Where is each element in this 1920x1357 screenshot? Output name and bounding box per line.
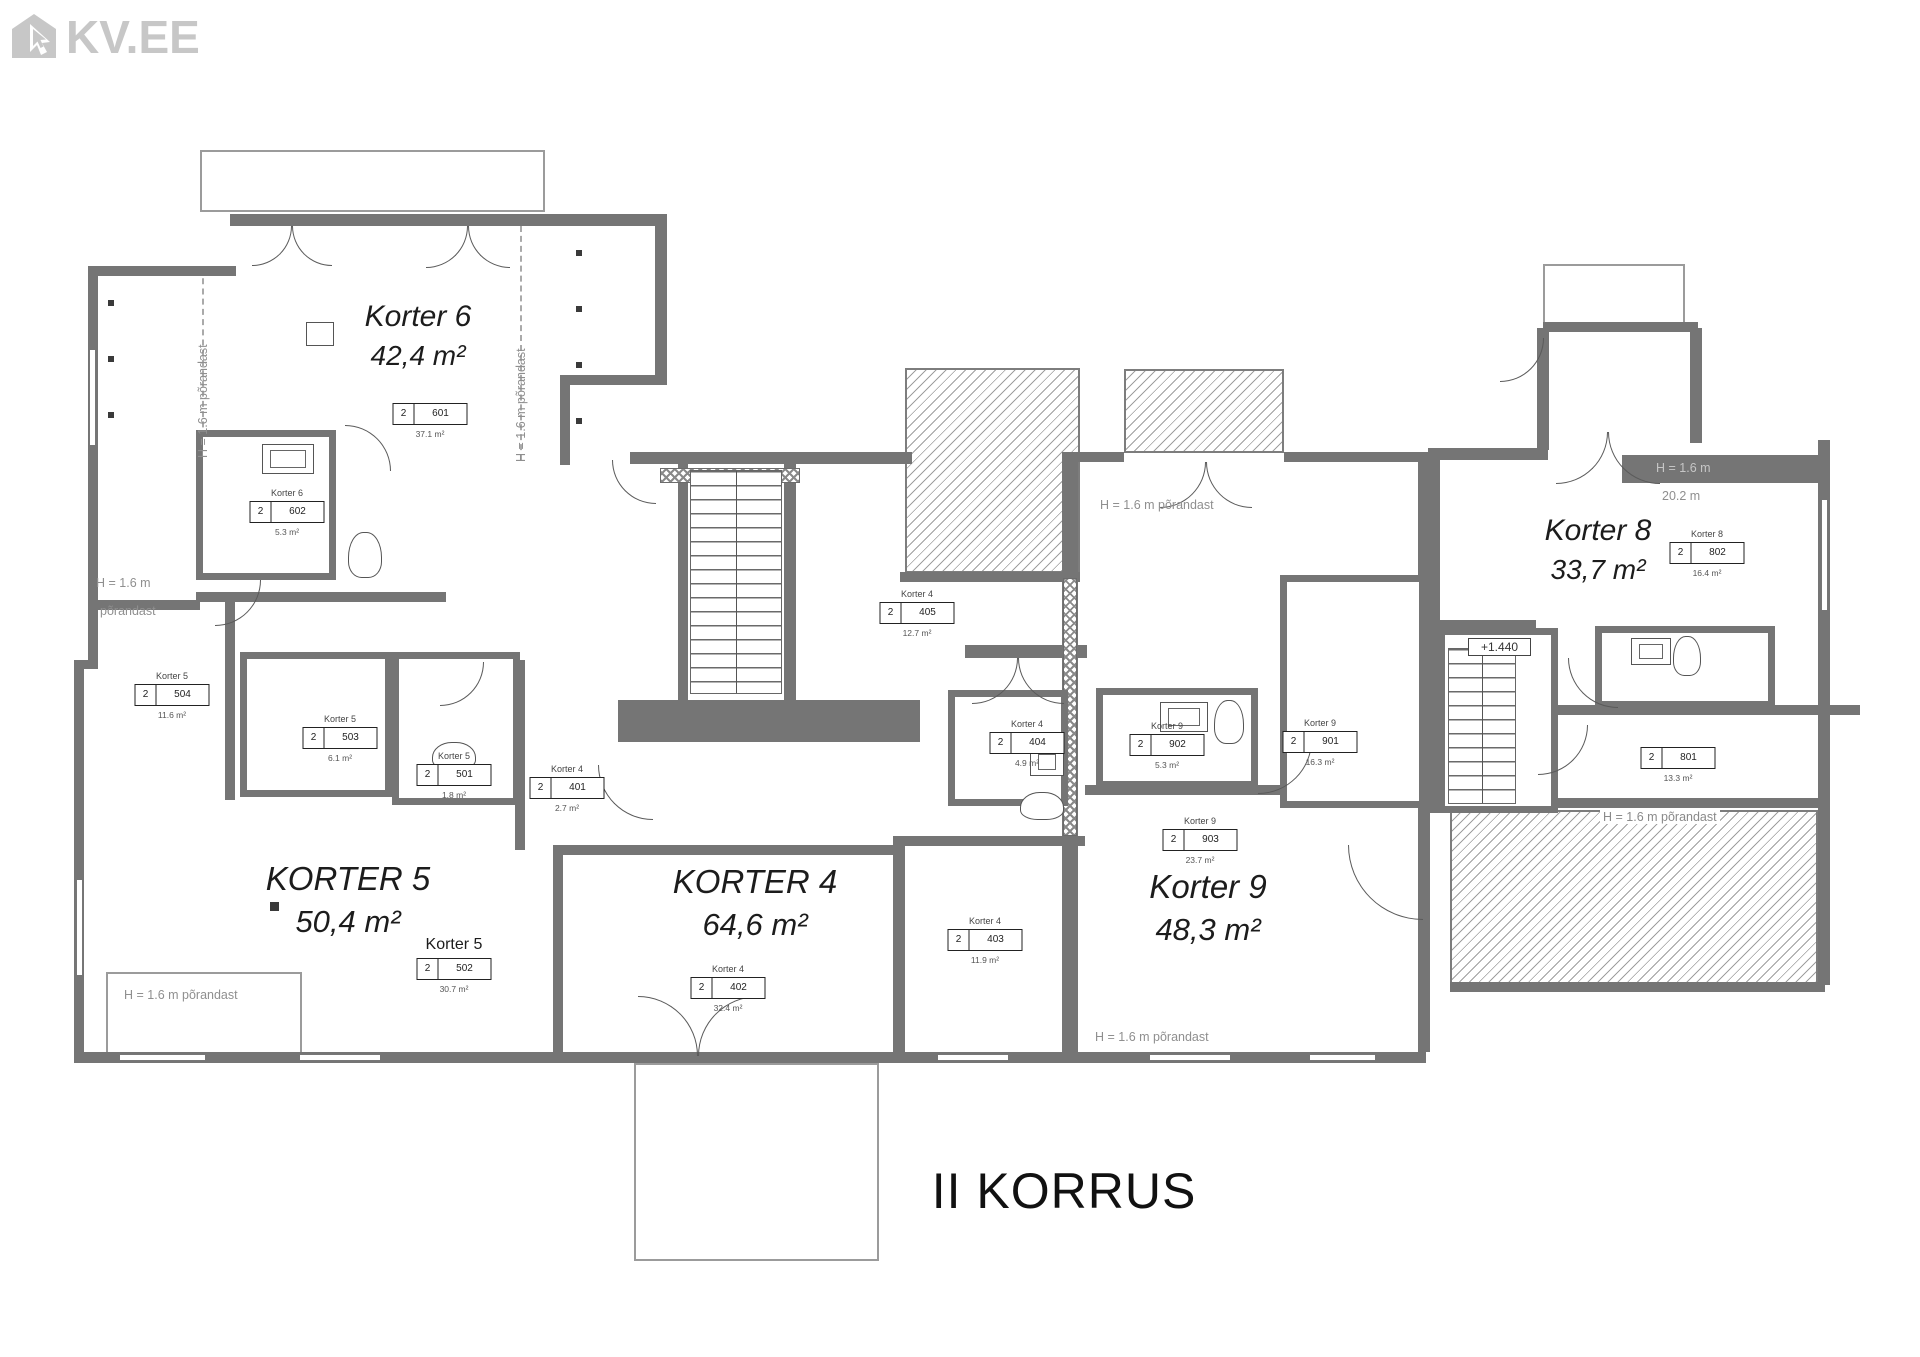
annotation-text: H = 1.6 m põrandast [124,988,238,1002]
door-arc [612,460,656,504]
room-area: 2.7 m² [530,803,605,813]
room-number: 801 [1663,748,1715,768]
room-label: Korter 9 2 902 5.3 m² [1130,721,1205,770]
room-number-box: 2 802 [1670,542,1745,564]
annotation-text: põrandast [100,604,156,618]
annotation: H = 1.6 m põrandast [1095,1030,1209,1044]
room-number: 903 [1185,830,1237,850]
thin-outline [106,972,302,1060]
column-marker [108,300,114,306]
window-marker [76,880,83,975]
room-label-apartment: Korter 4 [880,589,955,599]
room-floor: 2 [1131,735,1152,755]
apartment-name: Korter 8 [1545,514,1652,548]
annotation-text: 20.2 m [1662,489,1700,503]
annotation-text: H = 1.6 m põrandast [514,348,528,462]
room-number-box: 2 901 [1283,731,1358,753]
column-marker [576,418,582,424]
wall [560,375,570,465]
apartment-name: KORTER 4 [673,863,837,901]
door-arc [426,226,468,268]
door-arc [1538,725,1588,775]
room-number-box: 2 403 [948,929,1023,951]
room-number: 503 [325,728,377,748]
room-floor: 2 [394,404,415,424]
room-label: Korter 5 2 501 1.8 m² [417,751,492,800]
toilet-icon [1673,636,1701,676]
room-floor: 2 [136,685,157,705]
door-arc [1556,432,1608,484]
thin-outline [634,1063,879,1261]
room-label: Korter 4 2 401 2.7 m² [530,764,605,813]
wall [1690,328,1702,443]
wall [1076,452,1124,462]
apartment-title: KORTER 4 64,6 m² [673,863,837,943]
room-number-box: 2 903 [1163,829,1238,851]
room-floor: 2 [949,930,970,950]
door-arc [345,425,391,471]
wall [630,452,912,464]
room-area: 37.1 m² [393,429,468,439]
window-marker [938,1054,1008,1061]
room-label: Korter 9 2 901 16.3 m² [1283,718,1358,767]
room-floor: 2 [418,959,439,979]
room-area: 30.7 m² [417,984,492,994]
room-number-box: 2 504 [135,684,210,706]
hatched-area [905,368,1080,573]
room-floor: 2 [251,502,272,522]
room-number-box: 2 602 [250,501,325,523]
room-label: Korter 4 2 403 11.9 m² [948,916,1023,965]
room-floor: 2 [881,603,902,623]
room-label-apartment [1641,734,1716,744]
column-marker [108,412,114,418]
room-label: Korter 9 2 903 23.7 m² [1163,816,1238,865]
room-label: Korter 4 2 405 12.7 m² [880,589,955,638]
room-number: 501 [439,765,491,785]
toilet-icon [348,532,382,578]
room-number-box: 2 503 [303,727,378,749]
window-marker [1150,1054,1230,1061]
apartment-title: KORTER 5 50,4 m² [266,860,430,940]
apartment-title: Korter 9 48,3 m² [1149,868,1266,948]
wall [784,455,796,705]
room-label: 2 801 13.3 m² [1641,734,1716,783]
wall [88,266,236,276]
annotation: H = 1.6 m põrandast [124,988,238,1002]
apartment-area: 50,4 m² [266,904,430,940]
apartment-area: 64,6 m² [673,907,837,943]
hatched-area [1450,810,1818,984]
room-area: 11.9 m² [948,955,1023,965]
column-marker [108,356,114,362]
wall [1535,798,1825,808]
wall [553,845,563,1052]
wall [1450,982,1825,992]
room-number: 401 [552,778,604,798]
annotation-text: H = 1.6 m [1656,461,1711,475]
room-number: 402 [713,978,765,998]
wall [900,572,1080,582]
apartment-title: Korter 8 33,7 m² [1545,514,1652,586]
room-label: Korter 5 2 503 6.1 m² [303,714,378,763]
room-label: Korter 6 2 602 5.3 m² [250,488,325,537]
room-number-box: 2 601 [393,403,468,425]
room-area: 32.4 m² [691,1003,766,1013]
window-marker [89,350,96,445]
apartment-area: 42,4 m² [365,340,472,372]
logo-text: KV.EE [66,10,200,64]
stairs [1448,648,1516,804]
room-label-apartment: Korter 5 [135,671,210,681]
room-label: Korter 5 2 502 30.7 m² [417,936,492,994]
room-number: 602 [272,502,324,522]
wall [893,836,905,1052]
window-marker [1310,1054,1375,1061]
room-number: 404 [1012,733,1064,753]
apartment-name: KORTER 5 [266,860,430,898]
room-label-apartment: Korter 4 [530,764,605,774]
room-number-box: 2 902 [1130,734,1205,756]
hatched-area [1124,369,1284,453]
room-label-apartment: Korter 4 [948,916,1023,926]
annotation: H = 1.6 m [96,576,151,590]
room-number-box: 2 401 [530,777,605,799]
logo: KV.EE [10,8,200,64]
room-floor: 2 [1642,748,1663,768]
room-label-apartment: Korter 5 [417,936,492,954]
annotation-text: +1.440 [1481,640,1518,654]
apartment-area: 48,3 m² [1149,912,1266,948]
room-label-apartment: Korter 5 [417,751,492,761]
wall [678,455,688,705]
room-floor: 2 [692,978,713,998]
room-label-apartment: Korter 9 [1283,718,1358,728]
window-marker [1821,500,1828,610]
wall [895,836,1085,846]
room-number: 802 [1692,543,1744,563]
room-area: 5.3 m² [1130,760,1205,770]
room-number: 403 [970,930,1022,950]
room-area: 13.3 m² [1641,773,1716,783]
door-arc [1608,432,1660,484]
apartment-name: Korter 6 [365,300,472,334]
room-floor: 2 [1284,732,1305,752]
door-arc [215,580,261,626]
room-label-apartment: Korter 5 [303,714,378,724]
apartment-title: Korter 6 42,4 m² [365,300,472,372]
room-area: 11.6 m² [135,710,210,720]
room-area: 4.9 m² [990,758,1065,768]
floor-title: II KORRUS [932,1162,1197,1220]
wall [225,600,235,800]
room-number: 504 [157,685,209,705]
door-arc [598,765,653,820]
room-area: 23.7 m² [1163,855,1238,865]
door-arc [252,226,292,266]
room-number: 502 [439,959,491,979]
stairs [690,470,782,694]
window-marker [300,1054,380,1061]
room-number-box: 2 402 [691,977,766,999]
room-label-apartment: Korter 8 [1670,529,1745,539]
wall [1428,448,1548,460]
annotation-text: H = 1.6 m [96,576,151,590]
room-label-apartment: Korter 4 [691,964,766,974]
room-floor: 2 [991,733,1012,753]
toilet-icon [1020,792,1064,820]
annotation: H = 1.6 m põrandast [1600,810,1720,824]
room-area: 12.7 m² [880,628,955,638]
fixture [306,322,334,346]
room-label-apartment: Korter 4 [990,719,1065,729]
room-number: 405 [902,603,954,623]
kv-house-icon [10,12,62,60]
toilet-icon [1214,700,1244,744]
room-number: 601 [415,404,467,424]
thin-outline [200,150,545,212]
column-marker [576,250,582,256]
annotation-text: H = 1.6 m põrandast [1100,498,1214,512]
door-arc [1568,658,1618,708]
annotation: H = 1.6 m põrandast [1100,498,1214,512]
room-number-box: 2 404 [990,732,1065,754]
wall [655,214,667,380]
annotation: H = 1.6 m põrandast [514,348,528,462]
wall [1543,322,1698,332]
wall-block [618,700,920,742]
room-area: 16.4 m² [1670,568,1745,578]
annotation: põrandast [100,604,156,618]
room-label-apartment: Korter 9 [1130,721,1205,731]
annotation-text: H = 1.6 m põrandast [1095,1030,1209,1044]
wall [1284,452,1424,462]
room-area: 5.3 m² [250,527,325,537]
wall [560,375,667,385]
room-label: Korter 8 2 802 16.4 m² [1670,529,1745,578]
room-floor: 2 [1164,830,1185,850]
room-number: 902 [1152,735,1204,755]
room-outline [1280,575,1426,808]
room-label-apartment: Korter 9 [1163,816,1238,826]
annotation: 20.2 m [1662,489,1700,503]
room-floor: 2 [418,765,439,785]
annotation-text: H = 1.6 m põrandast [196,344,210,458]
room-area: 1.8 m² [417,790,492,800]
room-floor: 2 [304,728,325,748]
apartment-area: 33,7 m² [1545,554,1652,586]
annotation-text: H = 1.6 m põrandast [1603,810,1717,824]
sink-icon [262,444,314,474]
room-label: 2 601 37.1 m² [393,390,468,439]
room-floor: 2 [1671,543,1692,563]
door-arc [1348,845,1423,920]
room-label: Korter 4 2 402 32.4 m² [691,964,766,1013]
floor-plan: KV.EE II KORRUS Korter 6 42,4 m² KORTER … [0,0,1920,1357]
apartment-name: Korter 9 [1149,868,1266,906]
room-number-box: 2 405 [880,602,955,624]
room-number-box: 2 501 [417,764,492,786]
room-label: Korter 4 2 404 4.9 m² [990,719,1065,768]
room-area: 16.3 m² [1283,757,1358,767]
annotation: +1.440 [1468,638,1531,656]
room-label-apartment: Korter 6 [250,488,325,498]
column-marker [576,362,582,368]
sink-icon [1631,638,1671,665]
room-number-box: 2 801 [1641,747,1716,769]
wall [553,845,901,855]
room-area: 6.1 m² [303,753,378,763]
wall [74,660,84,1063]
door-arc [468,226,510,268]
room-number-box: 2 502 [417,958,492,980]
door-arc [292,226,332,266]
room-number: 901 [1305,732,1357,752]
annotation: H = 1.6 m põrandast [196,344,210,458]
column-marker [576,306,582,312]
window-marker [120,1054,205,1061]
wall [230,214,667,226]
room-label-apartment [393,390,468,400]
annotation: H = 1.6 m [1656,461,1711,475]
door-arc [638,996,698,1056]
room-floor: 2 [531,778,552,798]
thin-outline [1543,264,1685,324]
room-label: Korter 5 2 504 11.6 m² [135,671,210,720]
